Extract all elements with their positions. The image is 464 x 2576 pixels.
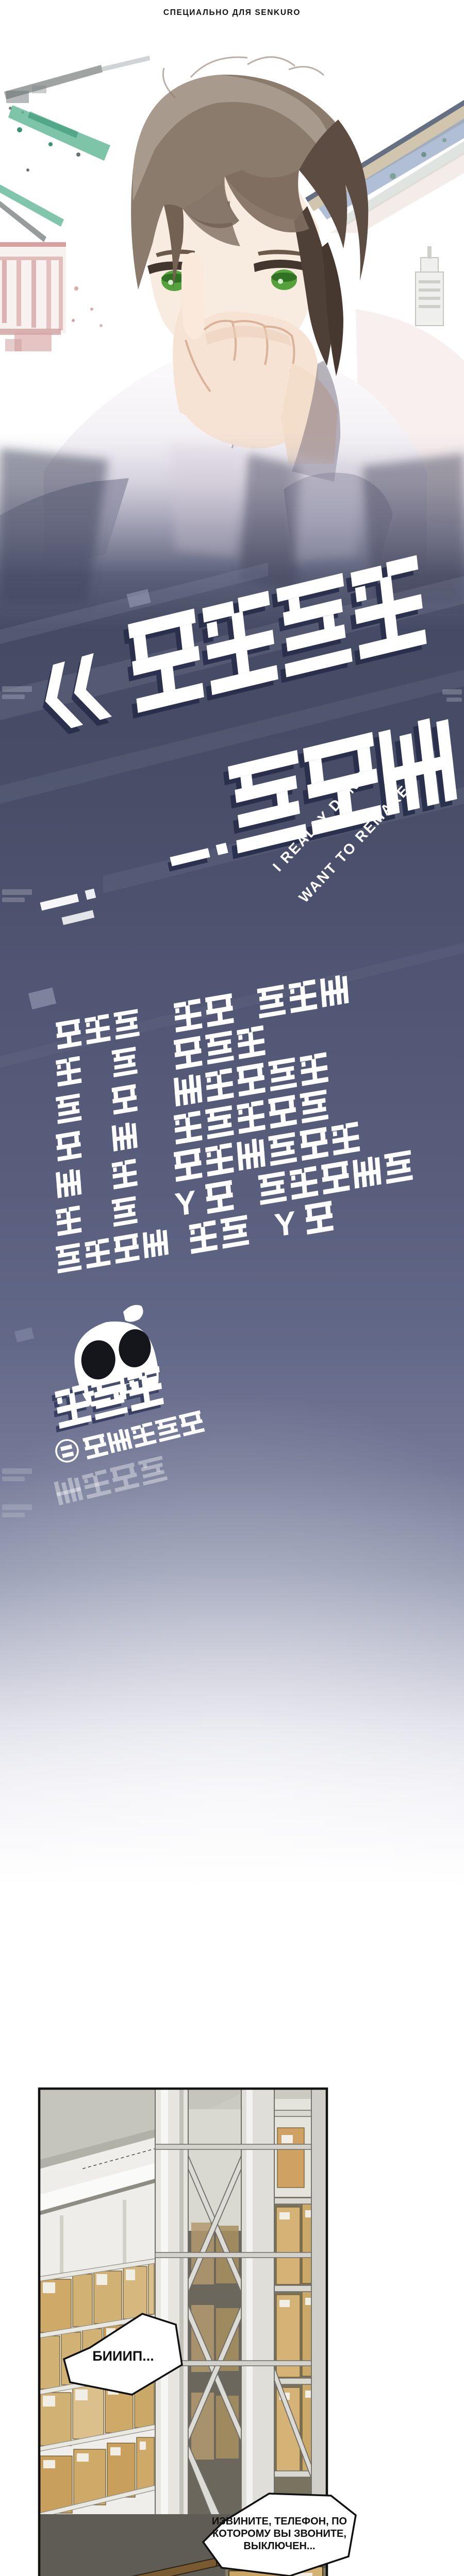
svg-text:ИЗВИНИТЕ, ТЕЛЕФОН, ПО: ИЗВИНИТЕ, ТЕЛЕФОН, ПО <box>212 2516 347 2527</box>
svg-text:БИИИП...: БИИИП... <box>92 2348 154 2364</box>
svg-text:КОТОРОМУ ВЫ ЗВОНИТЕ,: КОТОРОМУ ВЫ ЗВОНИТЕ, <box>212 2528 346 2539</box>
svg-text:Y: Y <box>173 1184 197 1224</box>
svg-text:ВЫКЛЮЧЕН...: ВЫКЛЮЧЕН... <box>243 2540 315 2552</box>
svg-text:Y: Y <box>273 1205 297 1244</box>
